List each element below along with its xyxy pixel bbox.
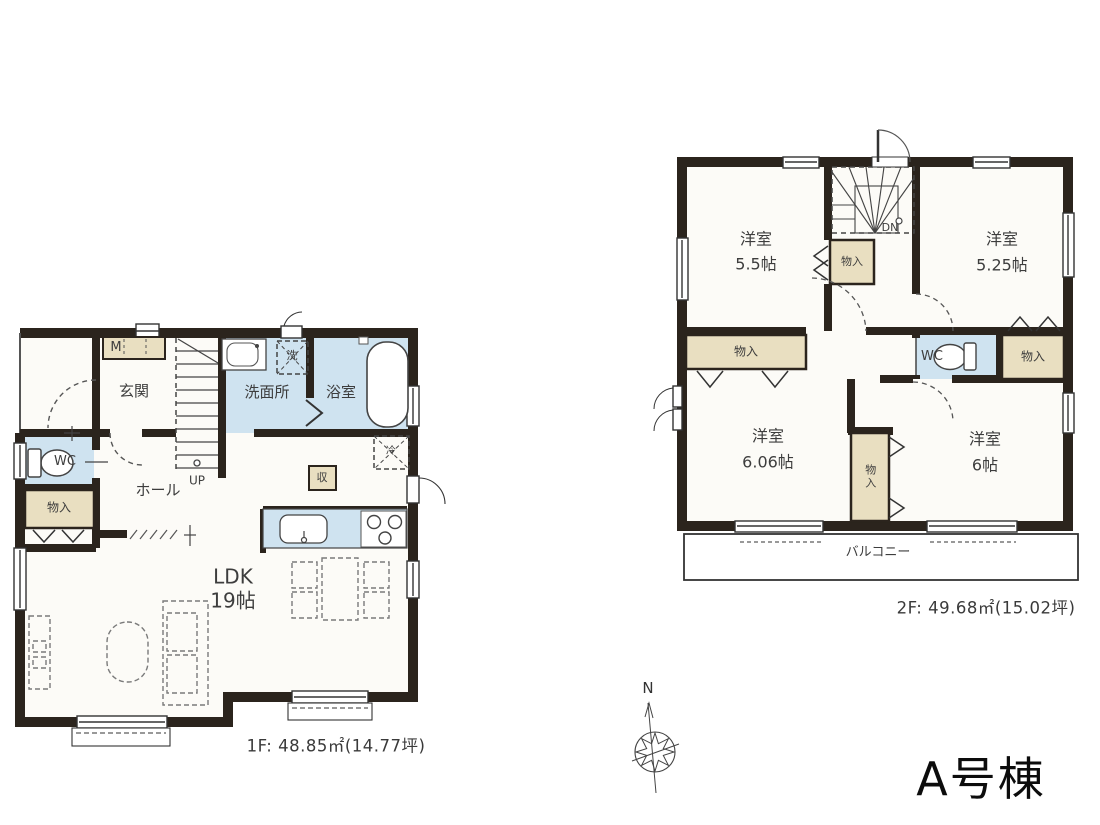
window-top-swing	[284, 312, 302, 326]
label-room-b-size: 5.25帖	[976, 258, 1028, 275]
stair-up-marker	[194, 460, 200, 466]
label-room-d-size: 6帖	[972, 458, 998, 475]
casement-window	[673, 386, 682, 407]
floor1-plan	[14, 312, 445, 746]
floorplan-canvas: M 玄関 洗面所 浴室 洗 WC 物入 ホール UP 収 冷 LDK 19帖 1…	[0, 0, 1100, 825]
bathtub-icon	[367, 342, 408, 427]
label-fridge: 冷	[386, 447, 396, 458]
label-closet-a: 物入	[841, 256, 863, 268]
label-washer: 洗	[287, 350, 298, 362]
label-wc-2f: WC	[921, 350, 943, 364]
label-ldk: LDK	[213, 567, 253, 588]
terrace-step-left	[72, 728, 170, 746]
floor2-plan	[654, 130, 1078, 580]
building-name: A号棟	[916, 755, 1045, 803]
shower-icon	[359, 337, 368, 344]
back-door	[407, 476, 419, 503]
label-room-a: 洋室	[740, 232, 772, 249]
label-hall: ホール	[135, 483, 180, 499]
label-washroom: 洗面所	[244, 385, 289, 401]
label-balcony: バルコニー	[846, 546, 911, 560]
label-pantry: 収	[317, 472, 328, 484]
label-stairs-up: UP	[189, 475, 205, 488]
label-room-c-size: 6.06帖	[742, 455, 794, 472]
label-meter-box: M	[110, 341, 121, 355]
label-storage-1f: 物入	[47, 502, 71, 515]
label-closet-b: 物入	[734, 346, 758, 359]
casement-window	[673, 409, 682, 430]
label-room-b: 洋室	[986, 232, 1018, 249]
label-bathroom: 浴室	[326, 385, 356, 401]
label-closet-d: 物入	[864, 464, 876, 490]
back-door-swing	[419, 478, 445, 504]
floorplan-drawing	[0, 0, 1100, 825]
kitchen-sink-icon	[280, 515, 327, 543]
sink-icon	[222, 339, 266, 370]
label-room-d: 洋室	[969, 432, 1001, 449]
label-entrance: 玄関	[119, 384, 149, 400]
compass-rose	[632, 703, 679, 793]
terrace-step-right	[288, 703, 372, 720]
label-stairs-dn: DN	[882, 222, 899, 234]
north-label: N	[642, 681, 653, 697]
label-room-a-size: 5.5帖	[735, 257, 776, 274]
label-ldk-size: 19帖	[210, 591, 255, 612]
floor1-caption: 1F: 48.85㎡(14.77坪)	[247, 737, 426, 754]
label-wc-1f: WC	[54, 455, 76, 469]
label-room-c: 洋室	[752, 429, 784, 446]
floor2-caption: 2F: 49.68㎡(15.02坪)	[897, 599, 1076, 616]
label-closet-c: 物入	[1021, 351, 1045, 364]
window-washroom-top	[281, 326, 302, 338]
floor2-top-door	[872, 130, 910, 167]
